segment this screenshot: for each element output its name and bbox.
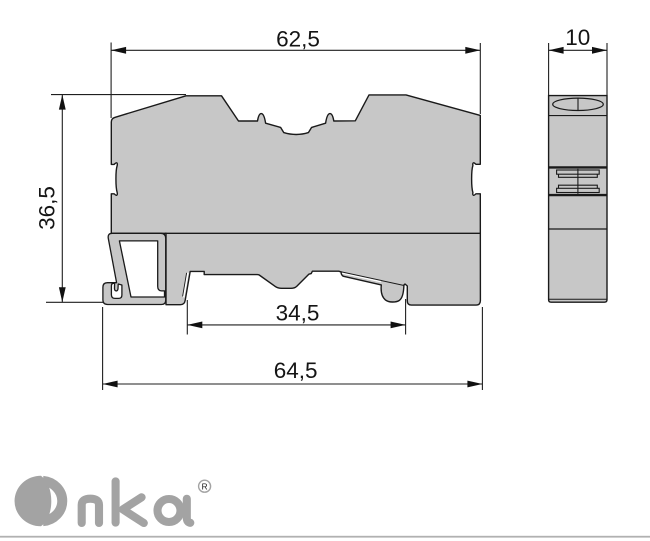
svg-text:64,5: 64,5 <box>274 358 318 383</box>
svg-text:R: R <box>202 482 208 491</box>
svg-text:62,5: 62,5 <box>276 27 320 52</box>
svg-text:36,5: 36,5 <box>35 186 60 230</box>
svg-text:10: 10 <box>565 25 590 50</box>
svg-text:34,5: 34,5 <box>276 301 320 326</box>
